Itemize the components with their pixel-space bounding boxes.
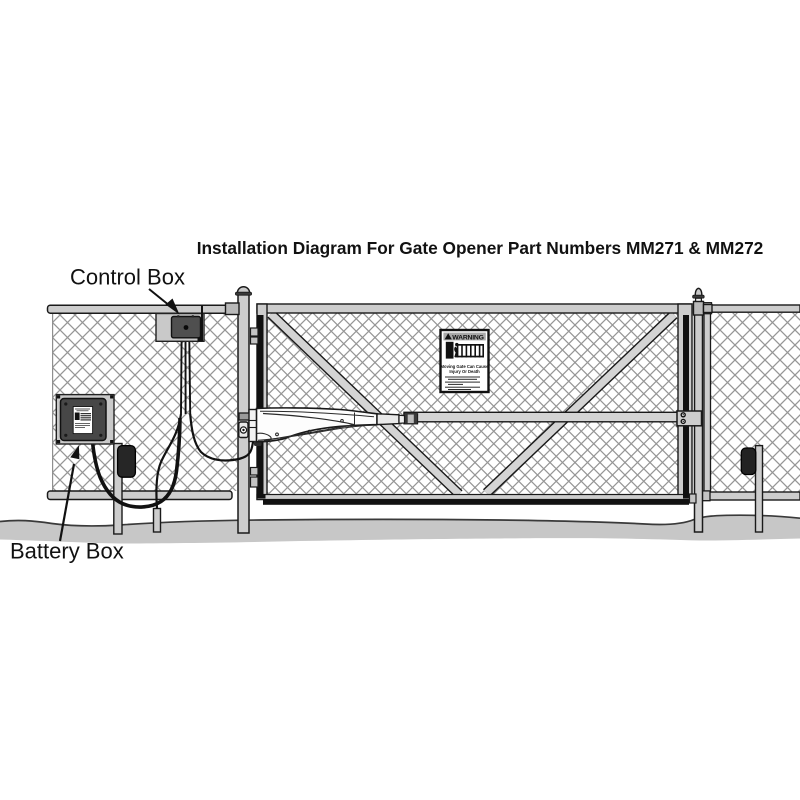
svg-text:WARNING: WARNING [452,334,483,341]
svg-text:Control Box: Control Box [70,265,185,290]
svg-text:Battery Box: Battery Box [10,539,124,564]
svg-text:Installation Diagram For Gate: Installation Diagram For Gate Opener Par… [197,238,764,258]
svg-text:Injury Or Death: Injury Or Death [449,369,480,374]
